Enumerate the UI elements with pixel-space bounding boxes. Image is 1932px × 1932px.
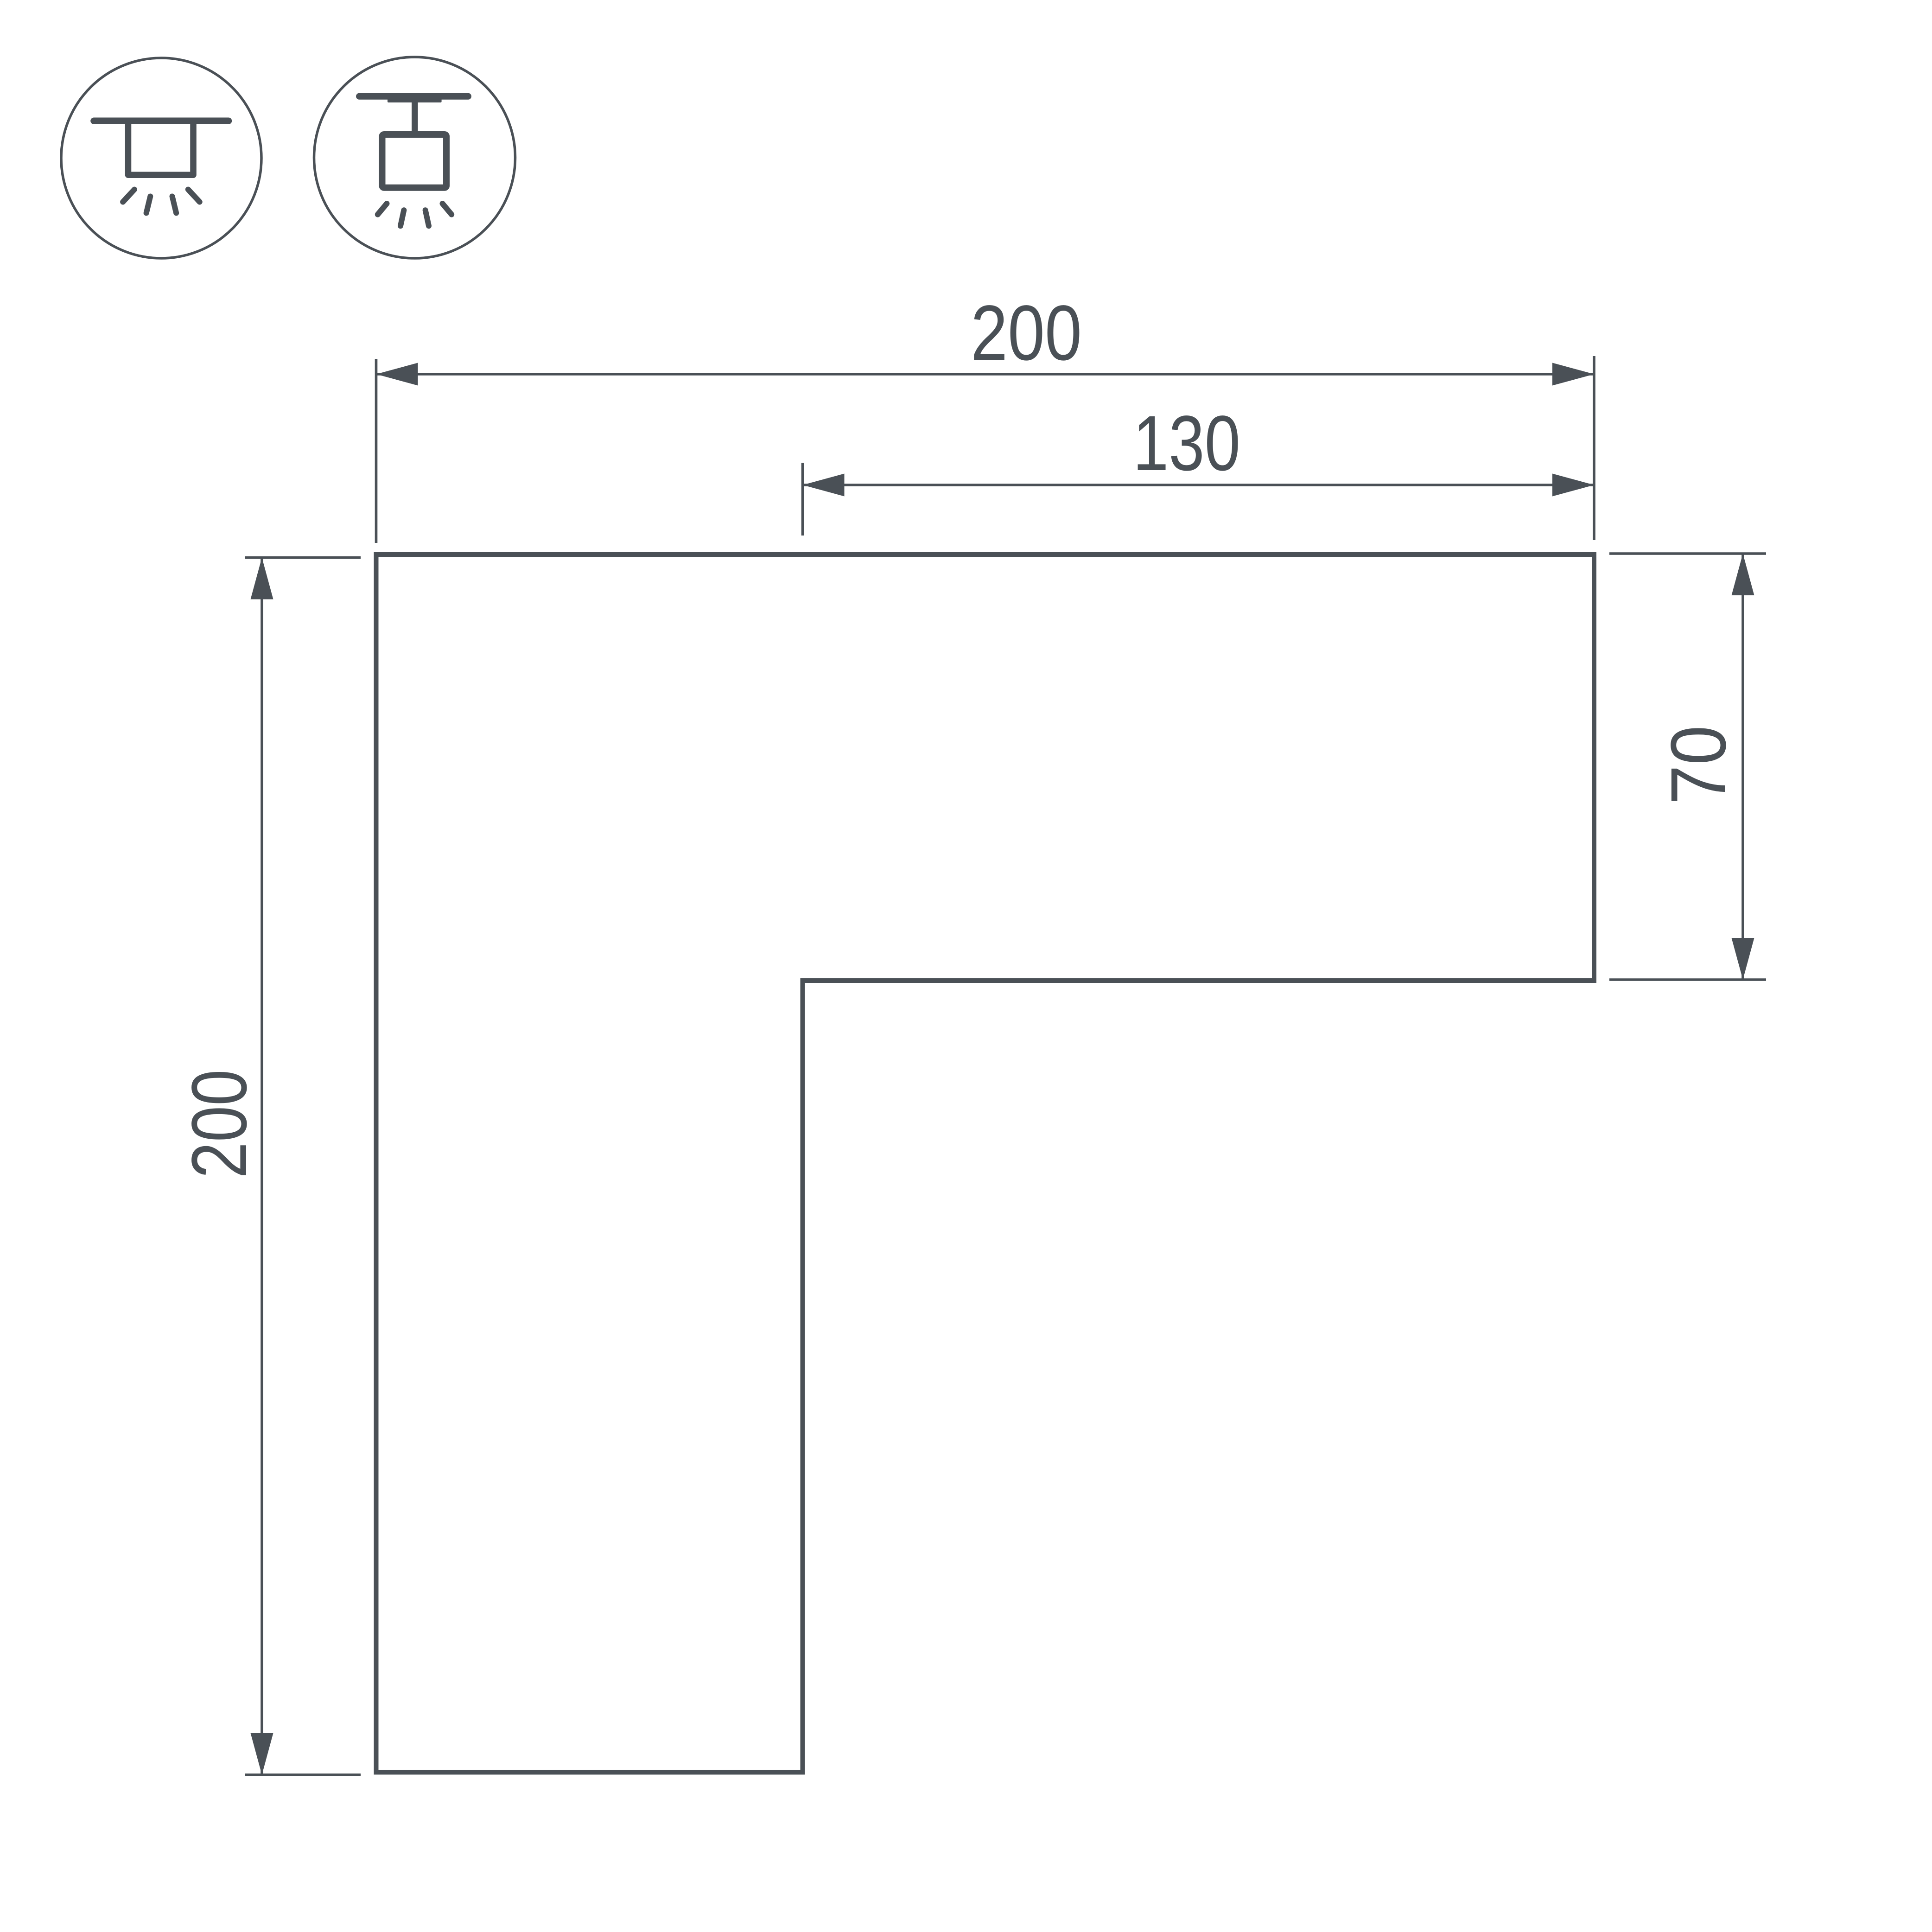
svg-text:200: 200	[971, 289, 1082, 376]
svg-text:200: 200	[175, 1070, 263, 1179]
svg-text:130: 130	[1133, 399, 1240, 487]
svg-text:70: 70	[1654, 726, 1742, 805]
